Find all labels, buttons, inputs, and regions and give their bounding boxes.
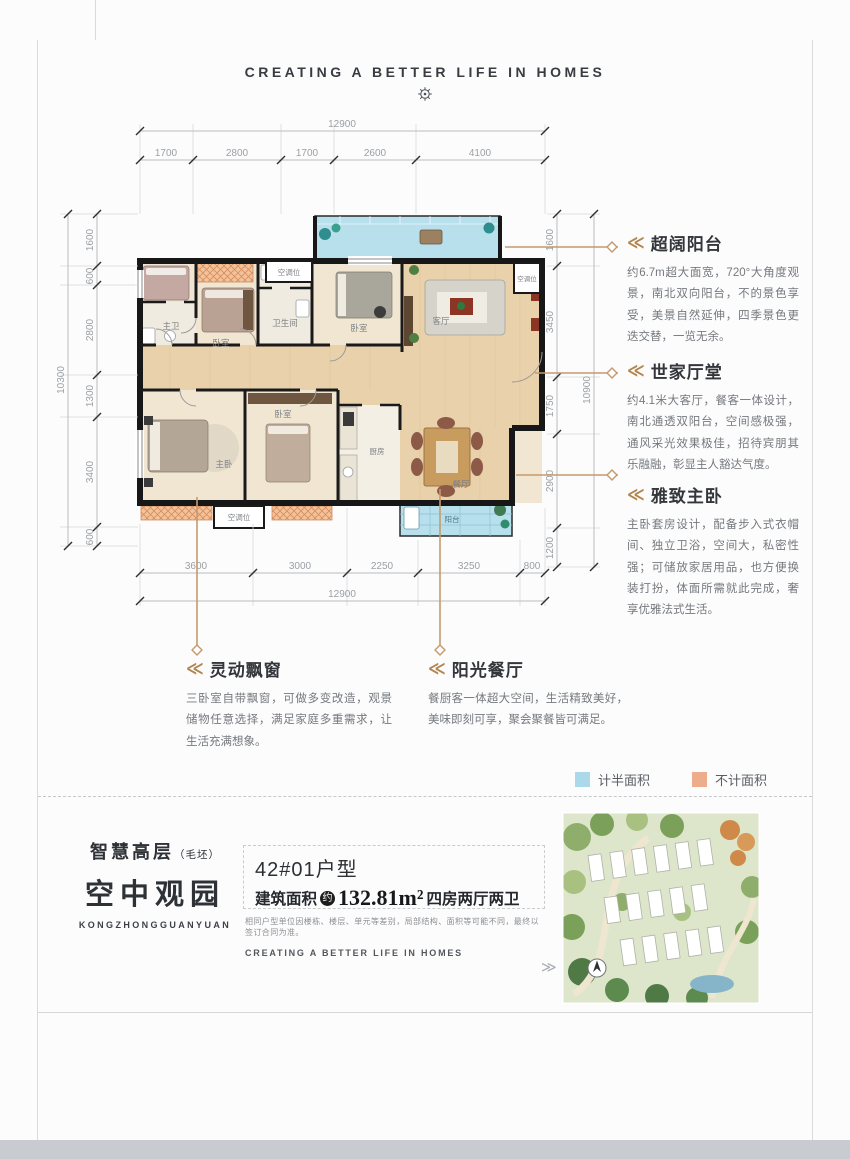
gold-chevron-icon: ≪ [627,234,645,251]
dim-label: 1700 [296,148,319,159]
annotation-baywindow: ≪ 灵动飘窗 三卧室自带飘窗，可做多变改造，观景储物任意选择，满足家庭多重需求，… [186,656,392,753]
area-value: 132.81m² [338,885,423,911]
dim-label: 2900 [545,469,556,492]
excluded-area-swatch [692,772,707,787]
annotation-body: 主卧套房设计，配备步入式衣帽间、独立卫浴，空间大，私密性强；可储放家居用品，也方… [627,515,799,621]
room-label: 主卫 [162,321,180,331]
annotation-title: 超阔阳台 [651,230,723,255]
dim-label: 12900 [328,119,356,130]
dim-label: 3450 [545,310,556,333]
brand-block: 智慧高层（毛坯） 空中观园 KONGZHONGGUANYUAN [78,838,232,930]
compass-icon [588,959,606,977]
dim-label: 1300 [85,384,96,407]
dim-label: 1750 [545,394,556,417]
area-label: 建筑面积 [255,887,317,909]
dim-label: 3400 [85,460,96,483]
brochure-page: CREATING A BETTER LIFE IN HOMES [0,0,850,1159]
bottom-tagline: CREATING A BETTER LIFE IN HOMES [245,948,463,958]
bed-room3 [336,272,392,318]
brand-name: 空中观园 [78,871,232,913]
gold-chevron-icon: ≪ [627,486,645,503]
dim-label: 4100 [469,148,492,159]
dim-label: 2800 [226,148,249,159]
room-label: 卧室 [212,338,230,348]
dim-label: 1200 [545,536,556,559]
map-pond [690,975,734,993]
area-legend: 计半面积 不计面积 [575,770,767,789]
dim-label: 600 [85,267,96,284]
room-label: 餐厅 [452,479,470,489]
site-plan-map [562,812,760,1004]
legend-label: 计半面积 [598,770,650,789]
legend-half-area: 计半面积 [575,770,650,789]
annotation-body: 餐厨客一体超大空间，生活精致美好，美味即刻可享，聚会聚餐皆可满足。 [428,689,628,732]
annotation-title: 世家厅堂 [651,358,723,383]
dim-label: 1600 [85,228,96,251]
annotation-title: 雅致主卧 [651,482,723,507]
unit-layout: 四房两厅两卫 [426,887,519,909]
annotation-body: 约6.7m超大面宽，720°大角度观景，南北双向阳台，不的景色享受，美景自然延伸… [627,263,799,348]
half-area-swatch [575,772,590,787]
unit-title: 42#01户型 [255,853,533,882]
dim-label: 12900 [328,589,356,600]
bed-room2 [202,288,254,332]
room-label: 厨房 [370,446,385,456]
chevron-right-icon: ≫ [541,958,557,976]
gold-chevron-icon: ≪ [627,362,645,379]
gold-chevron-icon: ≪ [186,660,204,677]
gold-chevron-icon: ≪ [428,660,446,677]
brand-note: （毛坯） [174,850,220,861]
dim-label: 3000 [289,561,312,572]
legend-excluded-area: 不计面积 [692,770,767,789]
annotation-balcony: ≪ 超阔阳台 约6.7m超大面宽，720°大角度观景，南北双向阳台，不的景色享受… [627,230,799,348]
dim-label: 10900 [582,376,593,404]
disclaimer: 相同户型单位因楼栋、楼层、单元等差别，局部结构、面积等可能不同，最终以签订合同为… [245,916,540,938]
annotation-title: 阳光餐厅 [452,656,524,681]
unit-info-box: 42#01户型 建筑面积 约 132.81m² 四房两厅两卫 [243,845,545,909]
brand-title: 智慧高层 [90,842,174,862]
room-label: 阳台 [445,514,460,524]
approx-circle-badge: 约 [320,891,335,906]
dim-label: 3250 [458,561,481,572]
brand-pinyin: KONGZHONGGUANYUAN [78,920,232,930]
dim-label: 2600 [364,148,387,159]
annotation-title: 灵动飘窗 [210,656,282,681]
room-label: 客厅 [432,316,450,326]
dim-label: 600 [85,528,96,545]
dim-label: 2800 [85,318,96,341]
room-label: 卧室 [274,409,292,419]
dim-label: 2250 [371,561,394,572]
annotation-body: 约4.1米大客厅，餐客一体设计，南北通透双阳台，空间感极强，通风采光效果极佳，招… [627,391,799,476]
room-label: 卫生间 [272,318,298,328]
room-label: 主卧 [215,459,233,469]
bed-topleft [143,266,189,300]
annotation-body: 三卧室自带飘窗，可做多变改造，观景储物任意选择，满足家庭多重需求，让生活充满想象… [186,689,392,753]
room-label: 空调位 [517,274,537,283]
dim-label: 1700 [155,148,178,159]
legend-label: 不计面积 [715,770,767,789]
annotation-master: ≪ 雅致主卧 主卧套房设计，配备步入式衣帽间、独立卫浴，空间大，私密性强；可储放… [627,482,799,621]
dim-label: 800 [524,561,541,572]
room-label: 空调位 [278,267,301,277]
top-balcony [315,216,500,261]
room-label: 卧室 [350,323,368,333]
room-label: 空调位 [228,512,251,522]
dim-label: 10300 [56,366,67,394]
annotation-dining: ≪ 阳光餐厅 餐厨客一体超大空间，生活精致美好，美味即刻可享，聚会聚餐皆可满足。 [428,656,628,732]
annotation-living: ≪ 世家厅堂 约4.1米大客厅，餐客一体设计，南北通透双阳台，空间感极强，通风采… [627,358,799,476]
